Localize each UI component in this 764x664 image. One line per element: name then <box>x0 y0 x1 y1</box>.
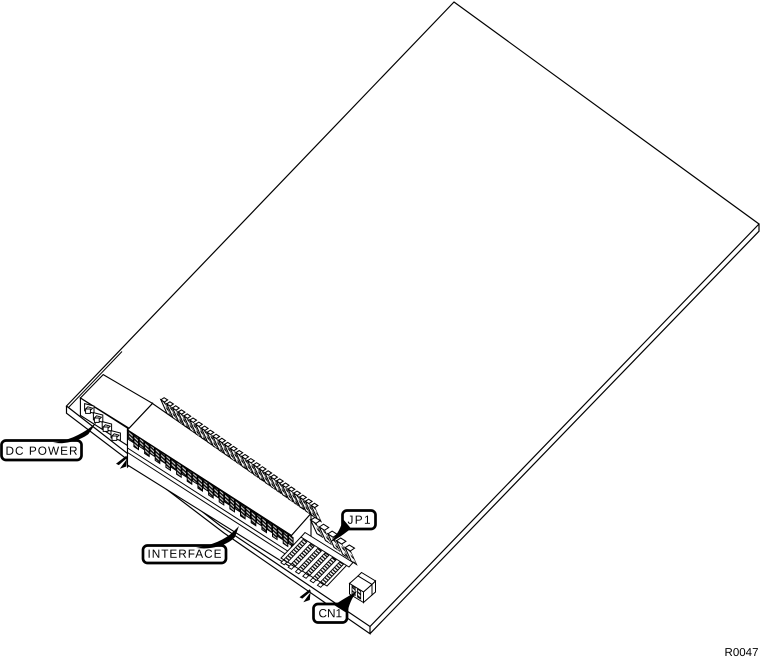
svg-text:DC POWER: DC POWER <box>5 444 77 458</box>
svg-text:CN1: CN1 <box>318 606 342 620</box>
svg-text:INTERFACE: INTERFACE <box>147 547 221 561</box>
svg-text:JP1: JP1 <box>347 513 370 527</box>
svg-text:R0047: R0047 <box>724 647 758 659</box>
